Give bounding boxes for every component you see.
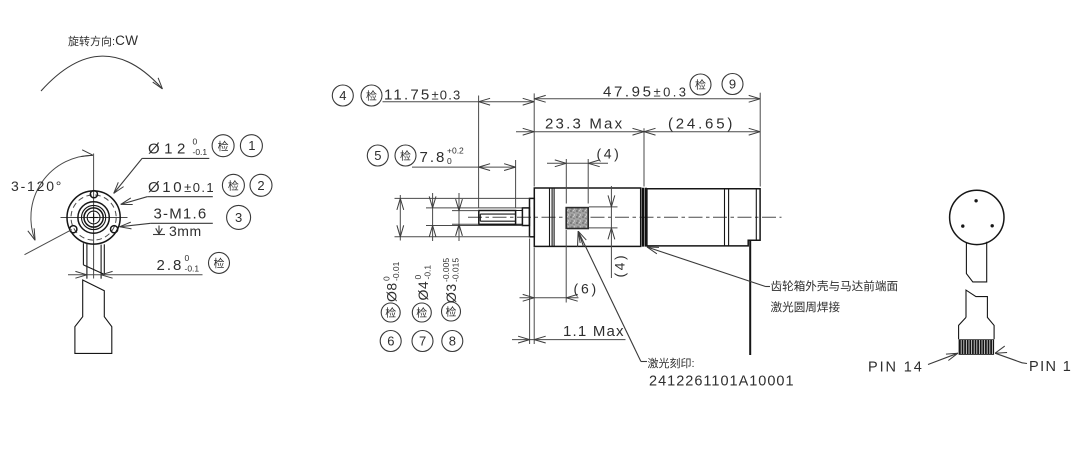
svg-text:-0.1: -0.1 xyxy=(193,147,208,157)
svg-text:(4): (4) xyxy=(612,253,628,278)
svg-text:Ø8: Ø8 xyxy=(384,282,400,302)
svg-text:-0.015: -0.015 xyxy=(451,258,461,282)
svg-text:0: 0 xyxy=(447,156,452,166)
svg-text:2412261101A10001: 2412261101A10001 xyxy=(649,374,795,390)
svg-text:9: 9 xyxy=(729,77,736,92)
svg-text:检: 检 xyxy=(218,139,229,153)
svg-text:8: 8 xyxy=(449,334,456,349)
svg-text:47.95±0.3: 47.95±0.3 xyxy=(603,84,688,101)
svg-text:检: 检 xyxy=(366,89,377,103)
svg-text:7.8: 7.8 xyxy=(420,149,447,166)
svg-text:PIN 14: PIN 14 xyxy=(868,360,924,376)
svg-text:-0.1: -0.1 xyxy=(423,265,433,280)
svg-text:1.1 Max: 1.1 Max xyxy=(563,323,625,340)
svg-text:2.8: 2.8 xyxy=(157,257,184,274)
svg-text:2: 2 xyxy=(257,178,264,193)
svg-text:激光圆周焊接: 激光圆周焊接 xyxy=(771,300,841,314)
svg-text:齿轮箱外壳与马达前端面: 齿轮箱外壳与马达前端面 xyxy=(771,279,899,293)
svg-text:-0.01: -0.01 xyxy=(391,261,401,281)
svg-text:3: 3 xyxy=(235,210,242,225)
svg-text:(24.65): (24.65) xyxy=(668,115,735,132)
svg-text:(4): (4) xyxy=(597,146,622,162)
svg-text:检: 检 xyxy=(228,178,239,192)
svg-text:1: 1 xyxy=(248,138,255,153)
svg-text:0: 0 xyxy=(185,253,190,263)
svg-text:11.75±0.3: 11.75±0.3 xyxy=(384,87,461,104)
svg-text:检: 检 xyxy=(446,305,457,319)
svg-text:检: 检 xyxy=(695,78,706,92)
svg-text:检: 检 xyxy=(416,306,427,320)
svg-text:-0.1: -0.1 xyxy=(185,264,200,274)
svg-text:Ø3: Ø3 xyxy=(443,283,459,303)
svg-text:Ø4: Ø4 xyxy=(415,281,431,301)
svg-text:Ø10±0.1: Ø10±0.1 xyxy=(148,179,215,196)
svg-text:3-120°: 3-120° xyxy=(11,178,63,194)
svg-text:3-M1.6: 3-M1.6 xyxy=(154,206,208,223)
svg-text:0: 0 xyxy=(382,276,392,281)
svg-text:(6): (6) xyxy=(574,281,600,297)
svg-text:23.3 Max: 23.3 Max xyxy=(545,115,624,132)
svg-text:检: 检 xyxy=(400,149,411,163)
svg-text:4: 4 xyxy=(339,88,346,103)
svg-text:Ø12: Ø12 xyxy=(148,141,190,158)
svg-text:0: 0 xyxy=(413,275,423,280)
svg-text:3mm: 3mm xyxy=(169,223,202,239)
svg-text:5: 5 xyxy=(374,148,381,163)
svg-text:-0.005: -0.005 xyxy=(441,258,451,282)
svg-text:检: 检 xyxy=(214,256,225,270)
svg-text:检: 检 xyxy=(385,306,396,320)
svg-text:PIN 1: PIN 1 xyxy=(1029,359,1072,375)
svg-text:激光刻印:: 激光刻印: xyxy=(648,356,695,370)
svg-text:+0.2: +0.2 xyxy=(447,146,464,156)
svg-text:旋转方向:CW: 旋转方向:CW xyxy=(68,33,139,48)
svg-text:0: 0 xyxy=(193,137,198,147)
svg-text:6: 6 xyxy=(387,334,394,349)
svg-text:7: 7 xyxy=(419,334,426,349)
